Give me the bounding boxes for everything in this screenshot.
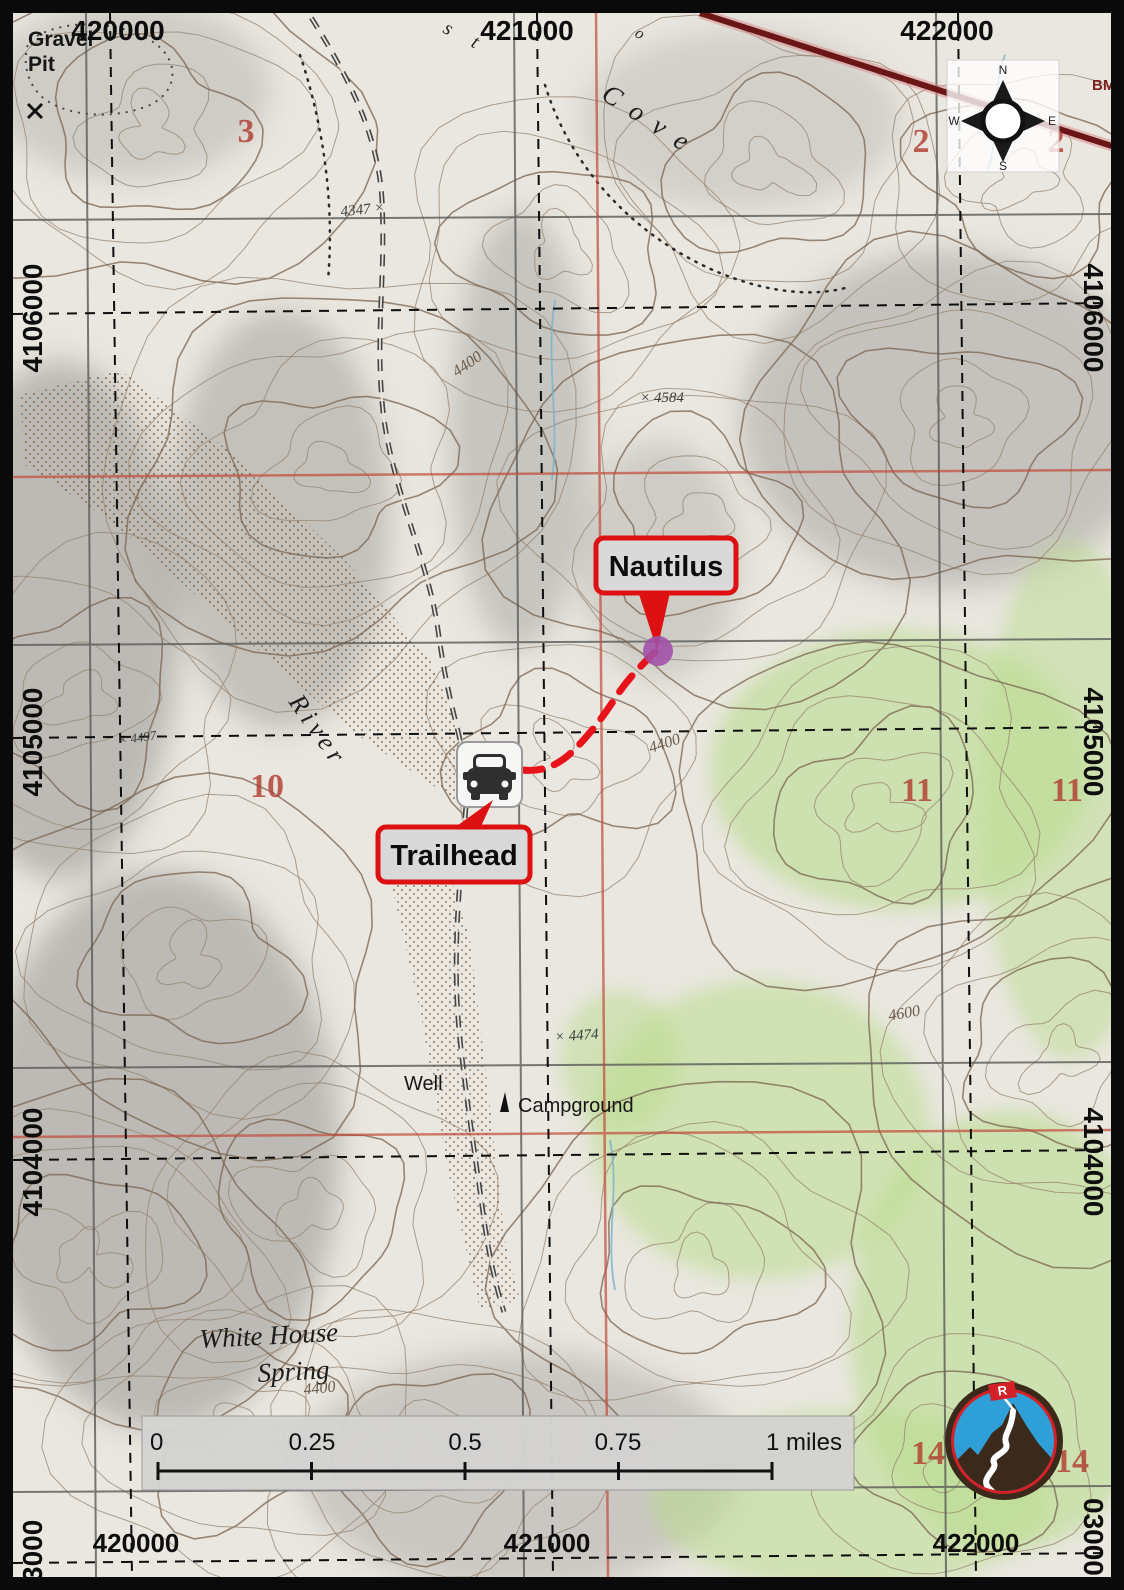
- compass-s-label: S: [999, 159, 1007, 173]
- contour-label-4400c: 4400: [303, 1378, 337, 1398]
- topo-map: Gravel Pit s t o Cove River Well Campgro…: [0, 0, 1124, 1590]
- easting-bottom-421000: 421000: [504, 1528, 591, 1558]
- gravel-pit-label2: Pit: [28, 53, 55, 76]
- elevation-4474: × 4474: [554, 1026, 599, 1045]
- nautilus-callout-label: Nautilus: [609, 551, 723, 583]
- easting-top-421000: 421000: [480, 15, 573, 46]
- compass-n-label: N: [999, 63, 1008, 77]
- northing-right-partial: 03000: [1078, 1498, 1109, 1576]
- elevation-4584: × 4584: [640, 390, 684, 406]
- compass-hub: [983, 101, 1023, 141]
- northing-left-4104000: 4104000: [17, 1107, 48, 1216]
- northing-left-partial: 3000: [17, 1520, 48, 1582]
- nautilus-marker: [643, 636, 673, 666]
- trailhead-car-icon: [457, 742, 522, 807]
- easting-top-420000: 420000: [71, 15, 164, 46]
- section-10: 10: [250, 768, 284, 805]
- northing-right-4105000: 4105000: [1078, 687, 1109, 796]
- northing-left-4106000: 4106000: [17, 263, 48, 372]
- scale-05: 0.5: [448, 1429, 481, 1456]
- trailhead-callout-label: Trailhead: [390, 840, 517, 872]
- easting-top-422000: 422000: [900, 15, 993, 46]
- easting-bottom-422000: 422000: [933, 1528, 1020, 1558]
- compass-rose: N S W E: [947, 60, 1059, 173]
- northing-right-4104000: 4104000: [1078, 1107, 1109, 1216]
- scale-1mile: 1 miles: [766, 1429, 842, 1456]
- section-14a: 14: [911, 1435, 945, 1472]
- scale-0: 0: [150, 1429, 163, 1456]
- section-3: 3: [238, 113, 255, 150]
- scale-025: 0.25: [289, 1429, 336, 1456]
- campground-label: Campground: [518, 1095, 634, 1117]
- compass-e-label: E: [1048, 114, 1056, 128]
- well-label: Well: [404, 1073, 443, 1095]
- northing-left-4105000: 4105000: [17, 687, 48, 796]
- scale-075: 0.75: [595, 1429, 642, 1456]
- compass-w-label: W: [948, 114, 960, 128]
- easting-bottom-420000: 420000: [93, 1528, 180, 1558]
- northing-right-4106000: 4106000: [1078, 263, 1109, 372]
- section-2a: 2: [913, 123, 930, 160]
- scale-bar: 0 0.25 0.5 0.75 1 miles: [142, 1416, 854, 1490]
- section-11a: 11: [901, 772, 933, 809]
